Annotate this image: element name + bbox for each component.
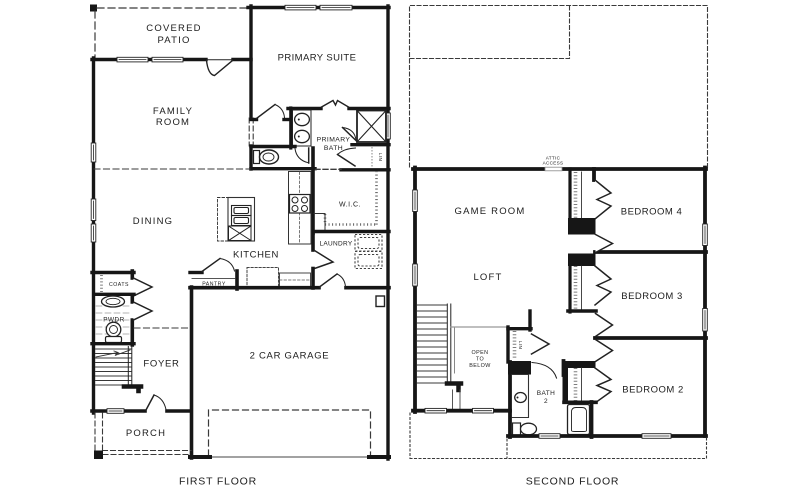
svg-text:2 CAR GARAGE: 2 CAR GARAGE: [250, 351, 330, 362]
svg-text:PORCH: PORCH: [126, 428, 166, 439]
svg-text:2: 2: [544, 398, 548, 405]
svg-text:PRIMARY: PRIMARY: [317, 137, 351, 144]
svg-text:BATH: BATH: [537, 390, 555, 397]
svg-text:PATIO: PATIO: [157, 35, 190, 46]
svg-text:ACCESS: ACCESS: [543, 161, 564, 166]
svg-text:OPEN: OPEN: [472, 350, 489, 356]
svg-text:KITCHEN: KITCHEN: [233, 250, 279, 261]
svg-text:BEDROOM 2: BEDROOM 2: [622, 385, 684, 396]
svg-text:LOFT: LOFT: [473, 272, 502, 283]
svg-text:FOYER: FOYER: [143, 359, 179, 370]
svg-text:LIN: LIN: [518, 341, 523, 349]
svg-text:ROOM: ROOM: [156, 117, 190, 128]
svg-text:W.I.C.: W.I.C.: [339, 202, 361, 209]
svg-text:COVERED: COVERED: [146, 23, 201, 34]
svg-text:PRIMARY SUITE: PRIMARY SUITE: [278, 53, 357, 64]
svg-text:BEDROOM 4: BEDROOM 4: [621, 207, 683, 218]
svg-text:BELOW: BELOW: [469, 363, 491, 369]
svg-text:DINING: DINING: [133, 216, 173, 227]
svg-text:GAME ROOM: GAME ROOM: [455, 206, 526, 217]
svg-text:BEDROOM 3: BEDROOM 3: [621, 291, 683, 302]
svg-text:BATH: BATH: [324, 145, 343, 152]
svg-text:LIN: LIN: [378, 153, 383, 161]
svg-text:TO: TO: [476, 357, 484, 363]
svg-text:COATS: COATS: [109, 282, 129, 288]
svg-text:FIRST FLOOR: FIRST FLOOR: [179, 476, 257, 488]
svg-text:FAMILY: FAMILY: [153, 106, 193, 117]
svg-text:LAUNDRY: LAUNDRY: [319, 241, 352, 248]
svg-text:SECOND FLOOR: SECOND FLOOR: [526, 476, 620, 488]
